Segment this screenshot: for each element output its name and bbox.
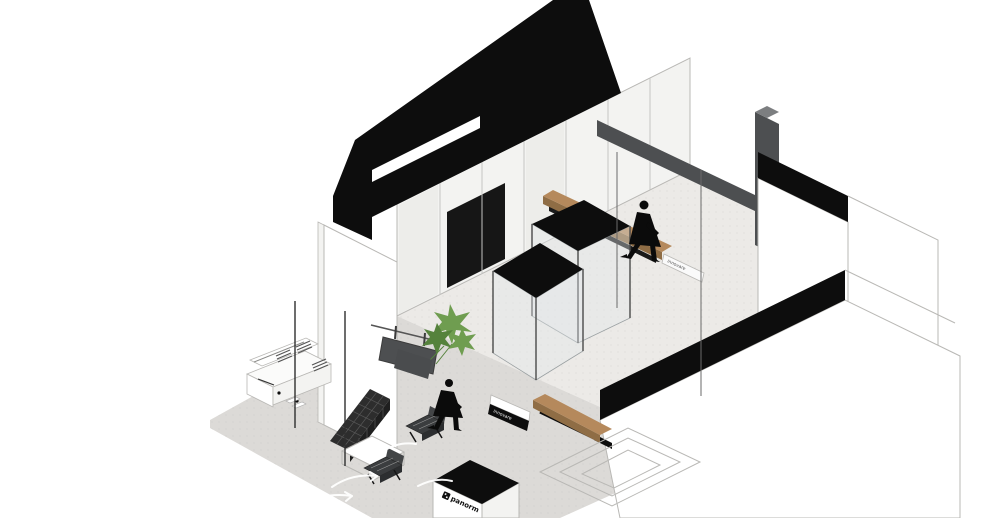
- wardrobe-glass-panel: [399, 185, 438, 314]
- glass-vitrine-front: [493, 243, 583, 380]
- figure-head: [445, 379, 453, 387]
- render-canvas: innovare: [0, 0, 999, 518]
- desk-knob: [277, 391, 280, 394]
- figure-head: [640, 201, 649, 210]
- axonometric-render: innovare: [0, 0, 999, 518]
- pier-cap: [318, 222, 324, 425]
- panel-post: [395, 326, 396, 339]
